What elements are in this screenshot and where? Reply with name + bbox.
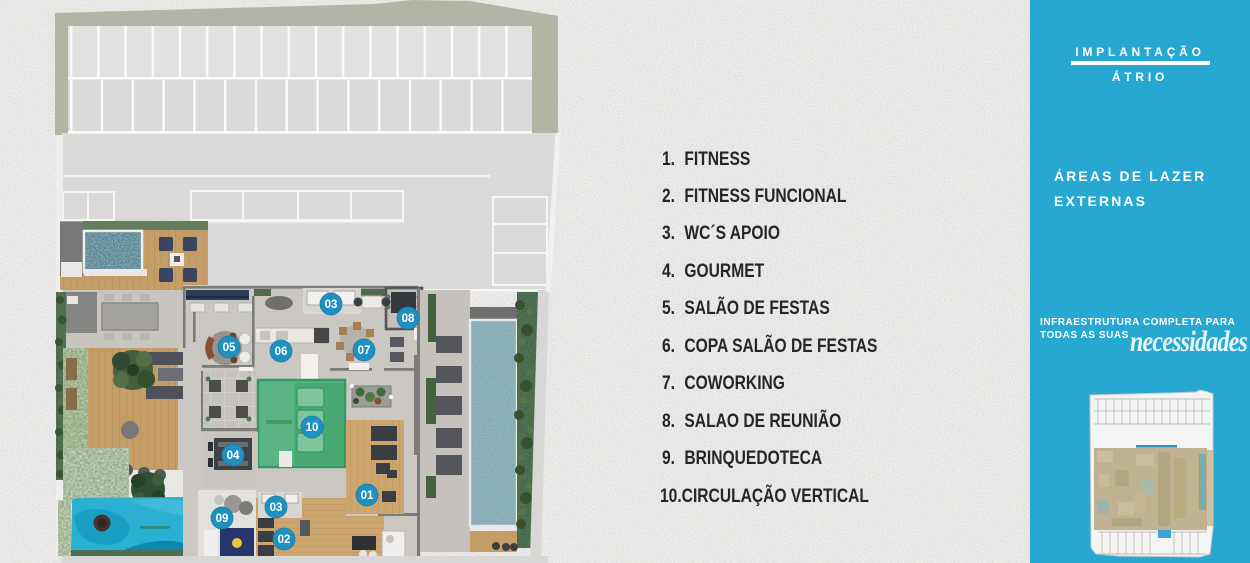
svg-text:03: 03 (325, 299, 338, 311)
svg-text:09: 09 (216, 513, 229, 525)
svg-text:01: 01 (361, 490, 374, 502)
svg-text:10: 10 (306, 422, 319, 434)
svg-text:04: 04 (227, 450, 240, 462)
svg-text:07: 07 (358, 345, 371, 357)
svg-text:05: 05 (223, 342, 236, 354)
svg-text:02: 02 (278, 534, 291, 546)
svg-text:06: 06 (275, 346, 288, 358)
svg-text:08: 08 (402, 313, 415, 325)
svg-text:03: 03 (270, 502, 283, 514)
